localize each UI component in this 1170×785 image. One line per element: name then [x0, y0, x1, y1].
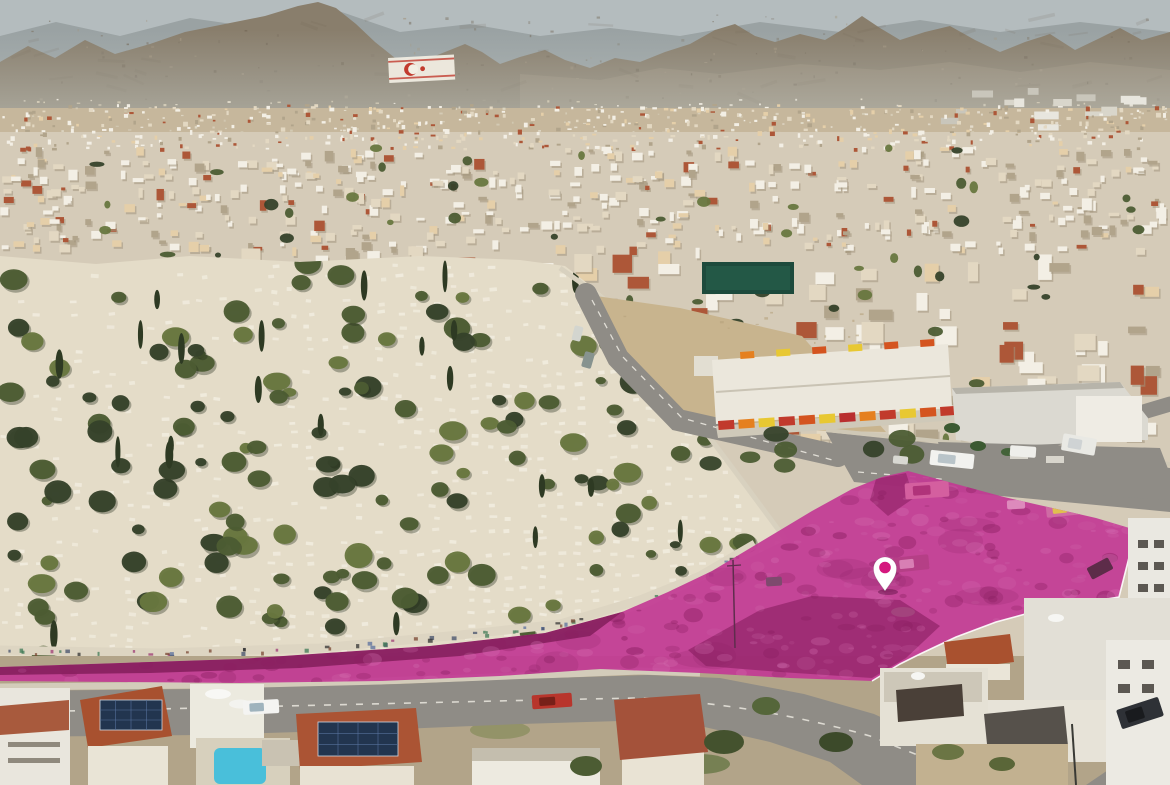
warehouse	[1124, 97, 1147, 104]
trnc-flag-on-mountain	[388, 55, 455, 83]
warehouse	[1028, 88, 1039, 95]
window	[1154, 540, 1164, 548]
cypress-tree	[442, 260, 447, 292]
awning	[896, 684, 964, 722]
awning	[819, 414, 836, 424]
cypress-tree	[539, 474, 545, 498]
awning	[879, 410, 896, 420]
window	[1142, 660, 1154, 669]
warehouse	[1053, 99, 1072, 106]
pin-dot	[879, 562, 891, 574]
gas-building	[1076, 396, 1142, 442]
tree	[819, 732, 853, 752]
cypress-tree	[451, 320, 457, 341]
warehouse	[972, 90, 993, 97]
cypress-tree	[447, 366, 453, 391]
window	[1154, 584, 1164, 592]
cypress-tree	[168, 436, 174, 455]
swimming-pool	[214, 748, 266, 784]
awning	[839, 412, 856, 422]
cypress-tree	[318, 414, 324, 436]
shrubs	[932, 744, 964, 760]
car	[893, 455, 909, 464]
tree	[704, 730, 744, 754]
warehouse	[1076, 94, 1095, 101]
cypress-tree	[393, 612, 399, 635]
awning	[758, 417, 775, 427]
balcony	[8, 758, 60, 763]
cypress-tree	[255, 376, 262, 403]
aerial-photo-listing	[0, 0, 1170, 785]
warehouse	[1085, 111, 1111, 116]
white-car	[243, 699, 280, 715]
window	[1138, 584, 1148, 592]
cypress-tree	[138, 320, 143, 349]
sports-court-inner	[706, 266, 790, 290]
shrubs	[989, 757, 1015, 771]
cypress-tree	[259, 320, 265, 352]
cypress-tree	[56, 349, 64, 378]
window	[1138, 562, 1148, 570]
cypress-tree	[50, 620, 57, 649]
awning	[779, 416, 796, 426]
fuel-pump	[1046, 456, 1064, 463]
awning	[900, 408, 917, 418]
window	[1118, 660, 1130, 669]
palm-tree	[970, 441, 986, 451]
awning	[920, 407, 937, 417]
pin-shadow	[878, 589, 898, 595]
cypress-tree	[361, 270, 368, 300]
awning	[738, 419, 755, 429]
cypress-tree	[115, 436, 120, 467]
awning	[799, 415, 816, 425]
cypress-tree	[678, 520, 683, 543]
window	[1138, 540, 1148, 548]
warehouse	[1014, 98, 1024, 107]
tree	[570, 756, 602, 776]
awning	[859, 411, 876, 421]
warehouse	[941, 118, 959, 124]
warehouse	[1034, 112, 1059, 120]
red-pickup-truck	[532, 693, 573, 710]
tiled-roof	[0, 700, 69, 735]
cypress-tree	[588, 478, 594, 496]
aerial-scene	[0, 0, 1170, 785]
tinted-truck	[904, 480, 949, 499]
water-heater	[205, 689, 231, 699]
water-heater	[1048, 614, 1064, 622]
tiled-roof	[614, 694, 708, 760]
white-van	[1010, 445, 1037, 458]
window	[1118, 684, 1130, 693]
window	[1142, 684, 1154, 693]
cypress-tree	[533, 526, 538, 548]
cypress-tree	[419, 337, 424, 356]
balcony	[8, 742, 60, 747]
gas-station	[938, 382, 1170, 500]
awning	[718, 420, 735, 430]
window	[1154, 562, 1164, 570]
cypress-tree	[178, 333, 185, 364]
house	[88, 746, 168, 785]
palm-tree	[944, 423, 960, 433]
house	[300, 766, 414, 785]
tree	[752, 697, 780, 715]
cypress-tree	[154, 290, 160, 309]
water-heater	[911, 672, 925, 680]
warehouse	[1038, 124, 1059, 130]
tinted-car	[766, 576, 783, 586]
